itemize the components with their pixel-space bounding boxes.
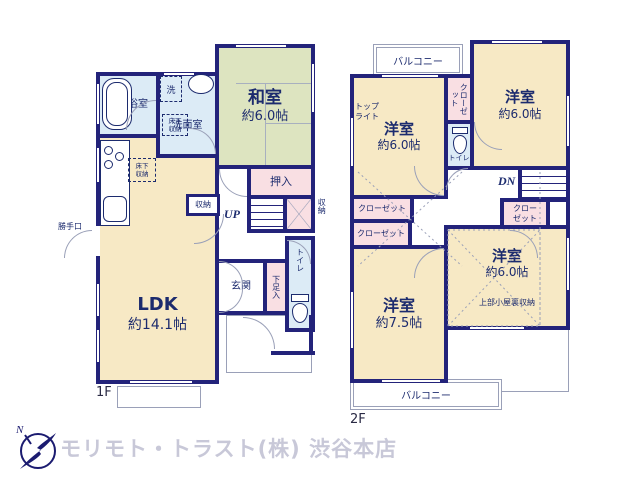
company-name: モリモト・トラスト(株) 渋谷本店 [60, 437, 397, 462]
window [382, 379, 440, 383]
door-arc [194, 214, 224, 244]
room-toilet-2f-label: トイレ [449, 154, 470, 163]
room-east-6-name: 洋室 [505, 88, 535, 107]
window [130, 380, 192, 384]
room-washitsu-name: 和室 [248, 88, 282, 109]
underfloor-storage: 床下収納 [128, 158, 156, 182]
toilet-icon [452, 127, 468, 134]
tatami-line [236, 83, 311, 84]
compass-north-label: N [15, 424, 24, 436]
room-east-6: 洋室 約6.0帖 [470, 40, 570, 170]
closet-oshiire: 押入 [247, 165, 315, 199]
window [350, 118, 354, 166]
stove-burner-icon [104, 160, 113, 169]
under-stairs-storage [283, 195, 315, 233]
closet-right-label: クローゼット [512, 204, 538, 225]
window [236, 44, 286, 48]
stairs-up-icon [247, 195, 287, 233]
wall-segment [271, 351, 315, 355]
window [566, 96, 570, 146]
room-ldk-name: LDK [137, 294, 177, 317]
door-arc [219, 169, 247, 197]
stairs-down-icon [518, 166, 570, 202]
storage-hall-box: 収納 [186, 194, 220, 216]
door-arc [64, 230, 92, 258]
backdoor-opening [96, 226, 100, 256]
underfloor-storage-label: 床下収納 [168, 117, 183, 134]
backdoor-label: 勝手口 [58, 222, 82, 232]
balcony-bottom: バルコニー [350, 379, 502, 410]
kitchen-sink-icon [103, 196, 127, 222]
stove-burner-icon [104, 146, 113, 155]
window [382, 74, 438, 78]
stairs-down-label: DN [498, 174, 515, 188]
closet-left-1-label: クローゼット [358, 204, 406, 214]
storage-hall-label: 収納 [195, 200, 211, 210]
window [96, 284, 100, 316]
window [96, 330, 100, 362]
floor-label-1f: 1F [96, 385, 112, 401]
porch-outline-1f [117, 386, 201, 408]
balcony-top: バルコニー [373, 44, 463, 76]
washbasin-icon [188, 74, 214, 94]
window [470, 326, 524, 330]
room-east-6-size: 約6.0帖 [498, 107, 541, 122]
room-west-75-size: 約7.5帖 [376, 316, 423, 332]
floorplan-canvas: LDK 約14.1帖 浴室 洗面室 和室 約6.0帖 押入 収納 玄関 下足入 … [0, 0, 640, 480]
room-west-6-name: 洋室 [384, 120, 414, 139]
wall-segment [566, 198, 570, 230]
storage-side-label: 収納 [317, 198, 326, 214]
underfloor-storage-label: 床下収納 [135, 162, 150, 179]
balcony-bottom-label: バルコニー [401, 387, 451, 402]
toilet-icon [291, 294, 309, 302]
stove-burner-icon [115, 152, 124, 161]
wall-segment [309, 315, 313, 355]
room-south-east-6-size: 約6.0帖 [485, 265, 528, 280]
closet-left-2-label: クローゼット [357, 229, 405, 239]
room-west-75-name: 洋室 [383, 296, 415, 316]
step-outline-h-2f [502, 391, 569, 392]
stairs-up-label: UP [224, 207, 240, 221]
window [96, 84, 100, 124]
compass-icon: N [10, 418, 64, 476]
room-washitsu: 和室 約6.0帖 [215, 44, 315, 169]
laundry-space: 洗 [160, 76, 182, 102]
door-arc [446, 168, 468, 190]
room-south-east-6: 洋室 約6.0帖 上部小屋裏収納 [444, 225, 570, 330]
window [350, 292, 354, 348]
attic-storage-note: 上部小屋裏収納 [479, 298, 535, 308]
toplight-label: トップライト [352, 102, 382, 122]
bathtub-icon [106, 82, 128, 126]
underfloor-storage: 床下収納 [162, 114, 188, 136]
floor-label-2f: 2F [350, 412, 366, 428]
window [566, 238, 570, 290]
shoe-closet-label: 下足入 [271, 275, 280, 299]
balcony-top-label: バルコニー [393, 53, 443, 68]
closet-oshiire-label: 押入 [270, 175, 292, 189]
room-west-6-size: 約6.0帖 [377, 138, 420, 153]
step-outline-v-2f [568, 330, 569, 392]
room-washitsu-size: 約6.0帖 [242, 109, 289, 125]
closet-top-label: クローゼット [450, 83, 468, 115]
laundry-label: 洗 [166, 83, 175, 96]
window [492, 40, 542, 44]
room-ldk-size: 約14.1帖 [128, 317, 187, 335]
window [311, 64, 315, 112]
